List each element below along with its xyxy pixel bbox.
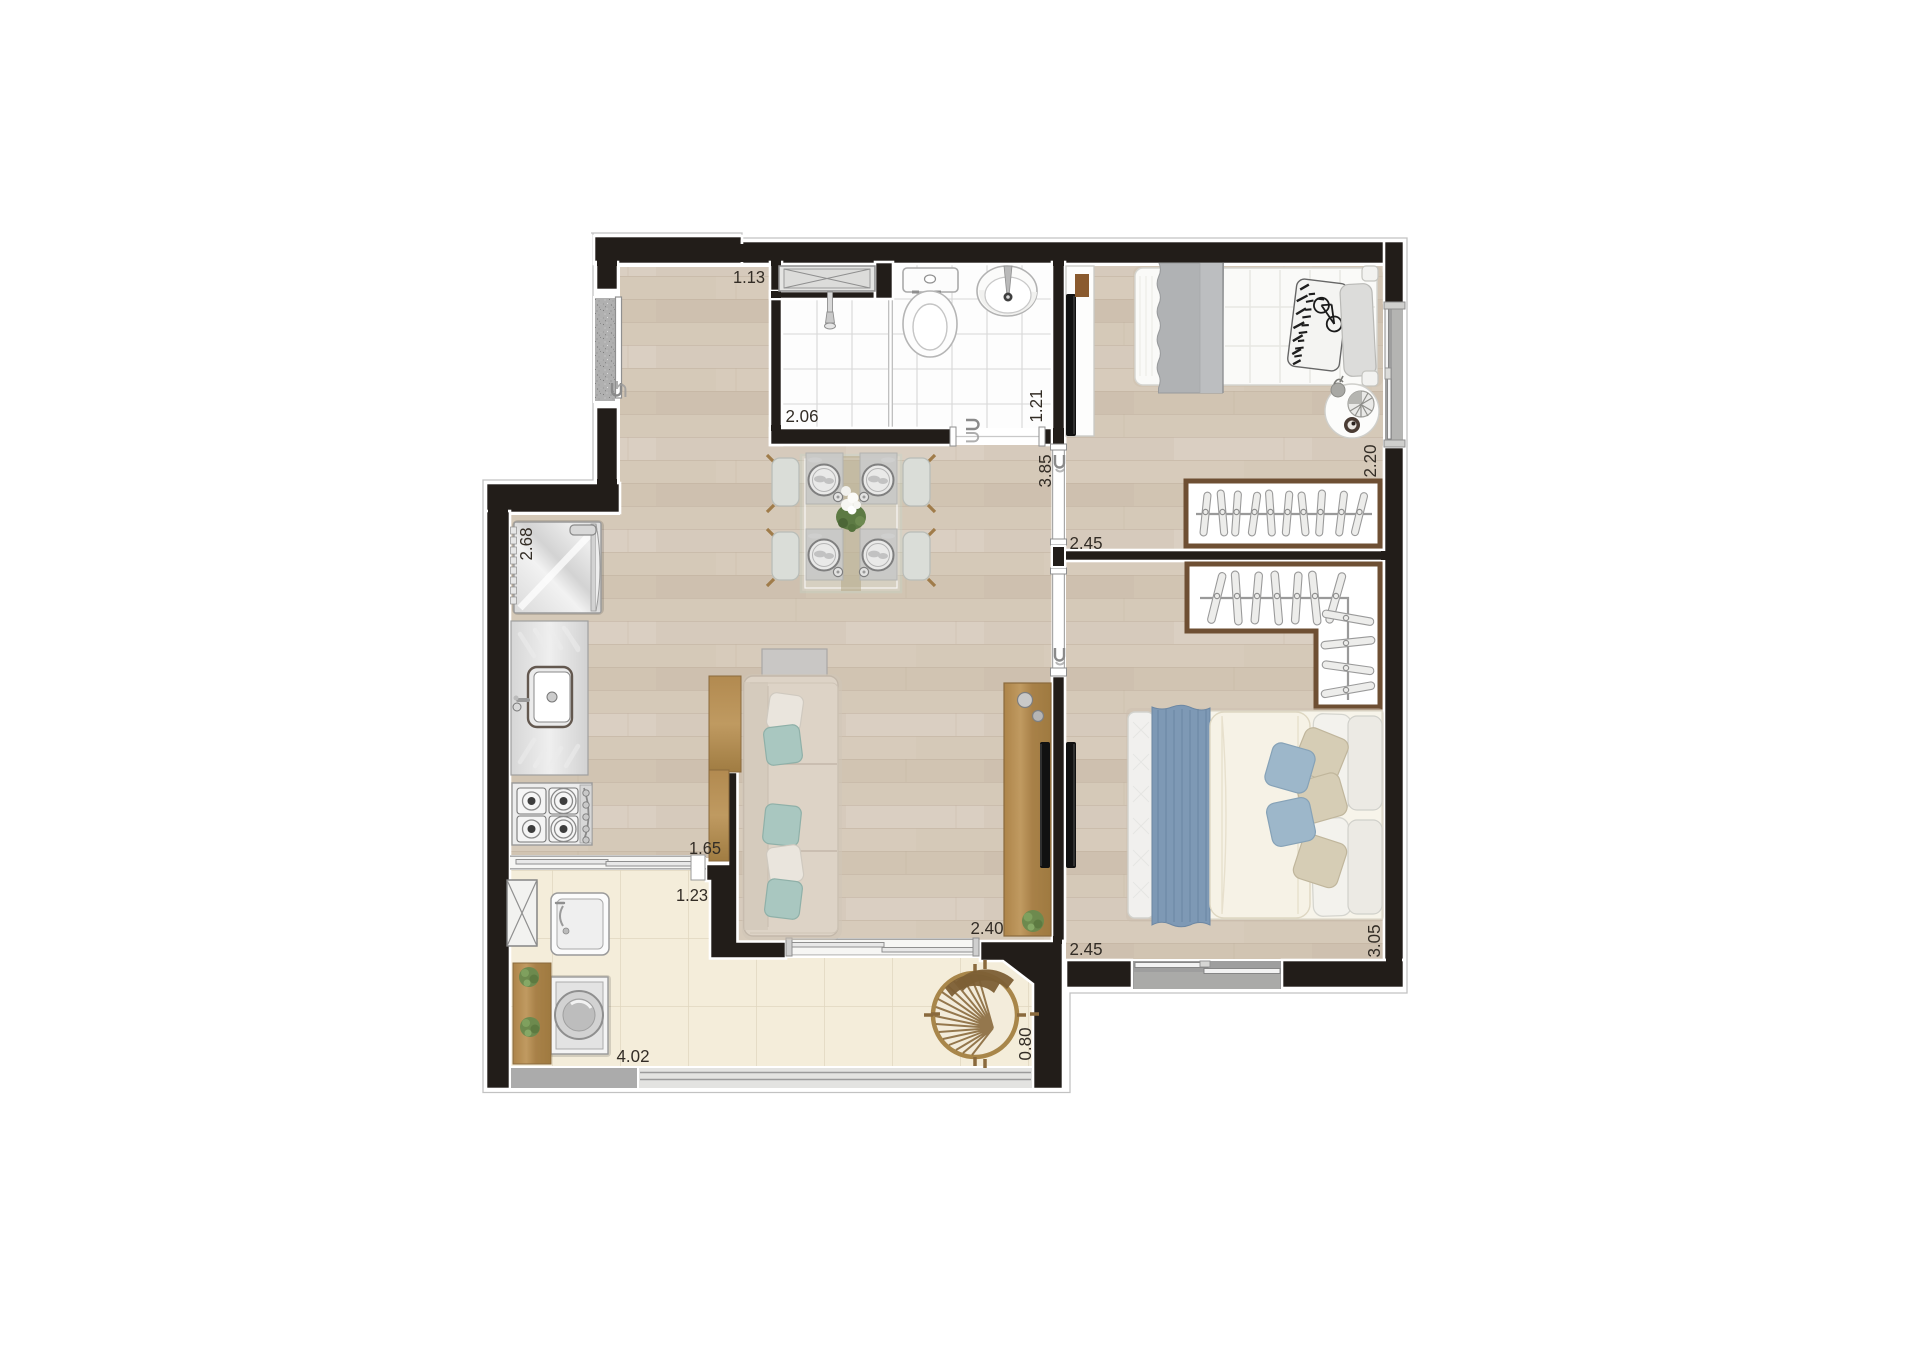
svg-text:0.80: 0.80 bbox=[1015, 1027, 1035, 1060]
svg-text:1.23: 1.23 bbox=[676, 885, 708, 905]
svg-text:1.21: 1.21 bbox=[1026, 390, 1046, 423]
svg-text:4.02: 4.02 bbox=[617, 1046, 650, 1066]
svg-text:2.20: 2.20 bbox=[1360, 444, 1380, 477]
svg-text:2.68: 2.68 bbox=[516, 528, 536, 561]
svg-text:2.45: 2.45 bbox=[1070, 939, 1103, 959]
svg-text:1.65: 1.65 bbox=[689, 838, 721, 858]
svg-text:1.13: 1.13 bbox=[733, 267, 765, 287]
svg-text:2.06: 2.06 bbox=[786, 406, 819, 426]
svg-text:3.05: 3.05 bbox=[1364, 925, 1384, 958]
svg-text:3.85: 3.85 bbox=[1035, 455, 1055, 488]
svg-text:2.45: 2.45 bbox=[1070, 533, 1103, 553]
svg-text:2.40: 2.40 bbox=[971, 918, 1004, 938]
